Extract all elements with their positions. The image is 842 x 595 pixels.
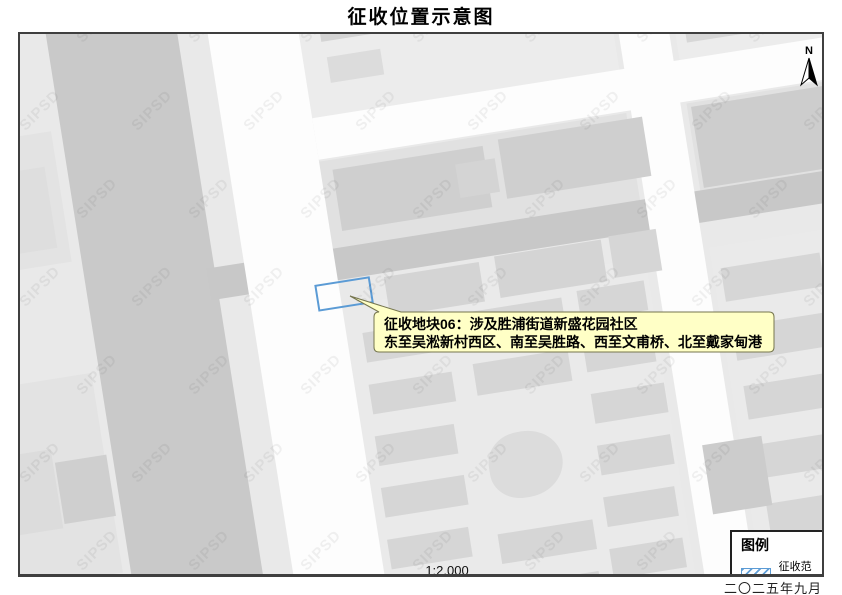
page: 征收位置示意图 SIPSDSIPSDSIPSDSIPSDSIPSDSIPSDSI… [0, 0, 842, 595]
building-block [702, 436, 772, 515]
north-arrow: N [795, 46, 823, 92]
building-block [608, 229, 662, 278]
map-canvas: SIPSDSIPSDSIPSDSIPSDSIPSDSIPSDSIPSDSIPSD… [18, 32, 824, 577]
building-block [55, 455, 116, 524]
map-date: 二〇二五年九月 [724, 578, 822, 595]
legend-box: 图例 征收范围 [730, 530, 822, 574]
acquisition-hatch-swatch [741, 568, 771, 578]
legend-item: 征收范围 [741, 558, 822, 577]
legend-title: 图例 [741, 535, 822, 555]
page-title: 征收位置示意图 [0, 2, 842, 29]
callout-label: 征收地块06：涉及胜浦街道新盛花园社区 东至吴淞新村西区、南至吴胜路、西至文甫桥… [384, 315, 770, 351]
legend-item-label: 征收范围 [779, 558, 822, 577]
callout-line-2: 东至吴淞新村西区、南至吴胜路、西至文甫桥、北至戴家甸港 [384, 333, 770, 351]
building-block [455, 158, 500, 198]
callout-line-1: 征收地块06：涉及胜浦街道新盛花园社区 [384, 315, 770, 333]
north-label: N [795, 46, 823, 57]
north-arrow-icon [797, 57, 821, 87]
map-scale: 1:2,000 [397, 563, 497, 577]
